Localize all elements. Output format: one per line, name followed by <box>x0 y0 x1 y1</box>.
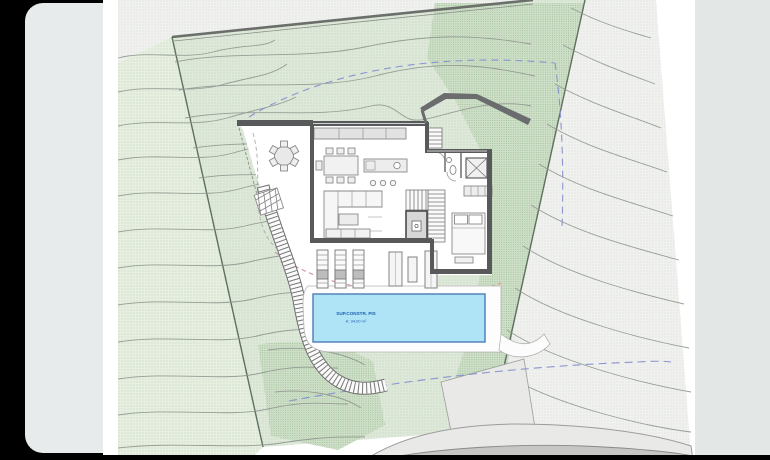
dining-chair <box>337 177 344 183</box>
site-plan-photo: SUP.CONSTR. PIS A: 34,00 m² <box>103 0 695 455</box>
pool-label-line2: A: 34,00 m² <box>346 319 367 324</box>
lounger-plain <box>389 252 402 286</box>
pillow <box>469 215 482 224</box>
next-photo-edge[interactable] <box>695 0 770 455</box>
dining-chair <box>326 148 333 154</box>
terrace-chair <box>281 141 288 147</box>
bar-stool <box>370 180 375 185</box>
lounger-striped <box>335 250 346 288</box>
side-table <box>408 257 417 282</box>
site-plan-drawing: SUP.CONSTR. PIS A: 34,00 m² <box>103 0 695 455</box>
previous-photo-edge[interactable] <box>25 3 103 453</box>
dining-chair <box>337 148 344 154</box>
kitchen-counter <box>314 128 406 139</box>
dining-chair <box>316 161 322 170</box>
terrace-chair <box>281 165 288 171</box>
dining-table <box>324 156 358 175</box>
toilet <box>447 158 452 163</box>
dining-chair <box>348 177 355 183</box>
bar-stool <box>380 180 385 185</box>
dining-chair <box>326 177 333 183</box>
bench <box>455 257 473 263</box>
sideboard <box>326 229 370 238</box>
bathroom-sink <box>450 166 456 175</box>
dining-chair <box>348 148 355 154</box>
lounger-striped <box>317 250 328 288</box>
sink <box>394 162 400 168</box>
pillow <box>455 215 468 224</box>
lounger-striped <box>353 250 364 288</box>
elevator <box>406 211 427 242</box>
pool-label-line1: SUP.CONSTR. PIS <box>336 311 375 316</box>
swimming-pool <box>313 294 485 342</box>
bar-stool <box>390 180 395 185</box>
coffee-table <box>339 214 358 225</box>
entry-steps <box>428 128 442 148</box>
